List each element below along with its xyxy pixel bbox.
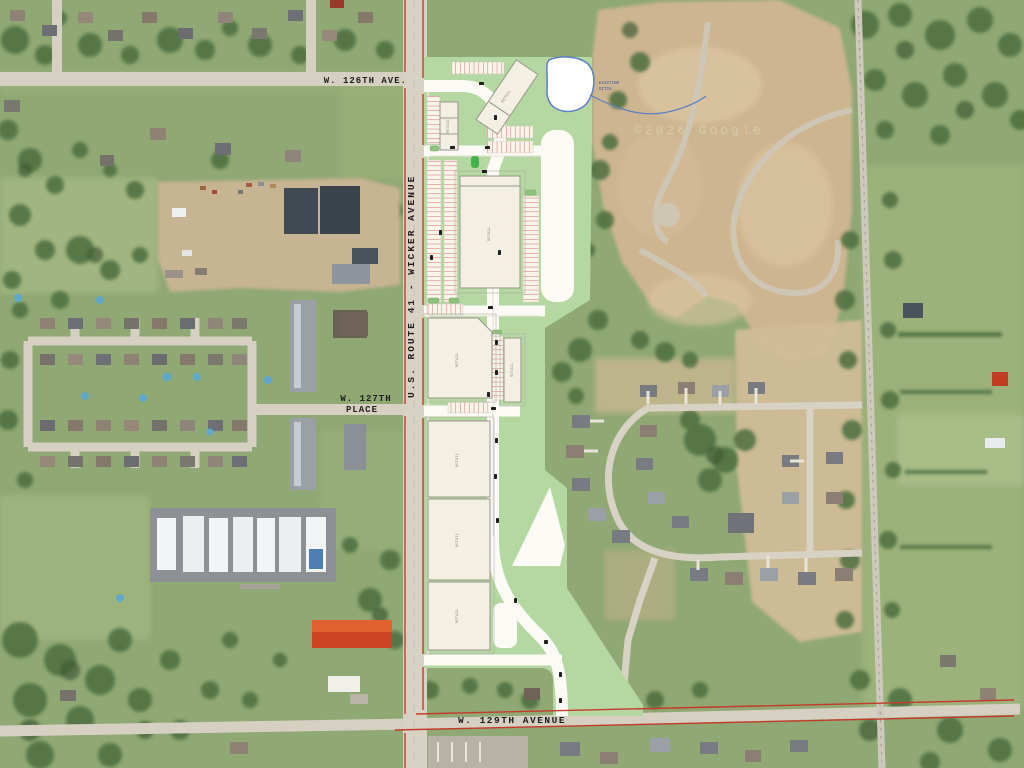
place-127-label-line2: PLACE	[346, 405, 378, 415]
south-parking-lot	[428, 736, 528, 768]
blue-roof-unit	[309, 549, 323, 569]
svg-text:RETAIL: RETAIL	[488, 226, 492, 241]
map-canvas: RETAIL RETAIL RETAIL RETAIL RETAIL RETAI…	[0, 0, 1024, 768]
street-127	[252, 404, 404, 415]
svg-text:RETAIL: RETAIL	[456, 532, 460, 547]
place-127-label-line1: W. 127TH	[340, 394, 391, 404]
svg-text:RETAIL: RETAIL	[456, 352, 460, 367]
svg-text:RETAIL: RETAIL	[456, 608, 460, 623]
aerial-site-plan-map: RETAIL RETAIL RETAIL RETAIL RETAIL RETAI…	[0, 0, 1024, 768]
google-watermark: ©2026 Google	[634, 123, 764, 138]
svg-text:EXISTING: EXISTING	[599, 82, 620, 86]
svg-text:RETAIL: RETAIL	[447, 118, 451, 133]
building-midbox-west	[428, 318, 492, 398]
svg-text:RETAIL: RETAIL	[456, 452, 460, 467]
ave-129-label: W. 129TH AVENUE	[458, 715, 566, 726]
ave-126-label: W. 126TH AVE.	[324, 76, 407, 86]
svg-text:DITCH: DITCH	[599, 88, 612, 92]
storage-facility	[150, 508, 336, 589]
route-41-label: U.S. ROUTE 41 - WICKER AVENUE	[406, 175, 417, 398]
svg-text:RETAIL: RETAIL	[511, 362, 515, 377]
